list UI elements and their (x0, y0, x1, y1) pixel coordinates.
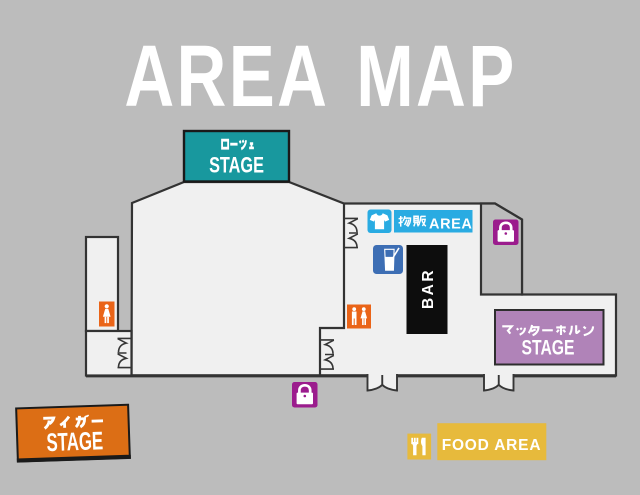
svg-text:AREA MAP: AREA MAP (124, 27, 516, 125)
svg-text:BAR: BAR (420, 268, 437, 309)
svg-text:STAGE: STAGE (522, 335, 575, 359)
svg-text:STAGE: STAGE (46, 426, 104, 457)
svg-text:AREA: AREA (429, 216, 473, 232)
svg-text:FOOD AREA: FOOD AREA (442, 437, 542, 454)
svg-text:STAGE: STAGE (209, 153, 264, 178)
